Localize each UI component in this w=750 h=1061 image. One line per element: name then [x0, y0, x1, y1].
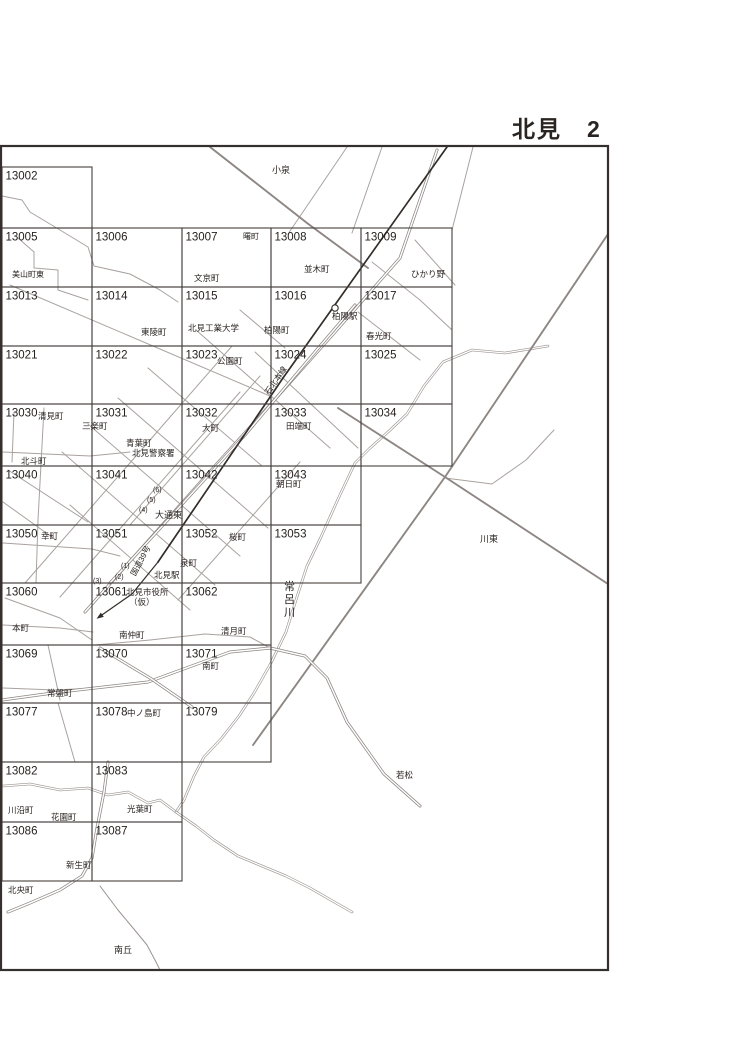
- place-label: 小泉: [272, 164, 290, 175]
- place-label: 川東: [480, 533, 498, 544]
- minor-road: [352, 147, 382, 233]
- grid-cell-number: 13052: [186, 529, 218, 541]
- grid-cell-number: 13078: [96, 707, 128, 719]
- place-label: 大通東: [155, 509, 182, 520]
- grid-cell-number: 13002: [6, 171, 38, 183]
- grid-cell-number: 13034: [365, 408, 398, 420]
- grid-cell-number: 13069: [6, 649, 38, 661]
- grid-cell-number: 13060: [6, 587, 38, 599]
- map-sheet-page: 北見 2 13002130051300613007130081300913013…: [0, 0, 750, 1061]
- major-road-fill: [85, 150, 437, 612]
- place-label: (2): [115, 574, 124, 581]
- place-label: 常呂川: [284, 580, 295, 619]
- grid-cell-number: 13079: [186, 707, 218, 719]
- grid-cell-number: 13071: [186, 649, 218, 661]
- place-label: 公園町: [217, 356, 243, 366]
- place-label: 春光町: [366, 331, 392, 341]
- place-label: 幸町: [41, 531, 59, 541]
- place-label: ひかり野: [411, 269, 446, 279]
- grid-cell-number: 13053: [275, 529, 307, 541]
- place-label: 北見工業大学: [188, 323, 240, 333]
- minor-road: [452, 147, 473, 230]
- grid-cell-number: 13087: [96, 826, 128, 838]
- place-label: 南丘: [114, 944, 132, 955]
- grid-cell-number: 13017: [365, 291, 397, 303]
- place-label: 北見市役所: [126, 587, 169, 597]
- place-label: (6): [153, 487, 162, 494]
- minor-road: [3, 543, 120, 556]
- grid-cell-number: 13023: [186, 350, 218, 362]
- grid-cell-number: 13007: [186, 232, 218, 244]
- grid-cell-number: 13083: [96, 766, 128, 778]
- river-fill: [176, 812, 352, 912]
- place-label: 東陵町: [141, 327, 167, 337]
- place-label: 清見町: [38, 411, 64, 421]
- place-label: 北見警察署: [132, 448, 175, 458]
- place-label: 美山町東: [12, 269, 44, 279]
- place-label: （仮）: [129, 597, 155, 607]
- minor-road: [10, 285, 270, 396]
- place-label: 北央町: [8, 885, 34, 895]
- place-label: 柏陽町: [264, 325, 290, 335]
- grid-cell-number: 13033: [275, 408, 307, 420]
- grid-cell-number: 13082: [6, 766, 38, 778]
- grid-cell-number: 13070: [96, 649, 128, 661]
- place-label: 南町: [202, 661, 220, 671]
- grid-cell-number: 13006: [96, 232, 128, 244]
- place-label: 柏陽駅: [332, 311, 358, 321]
- grid-cell-number: 13050: [6, 529, 38, 541]
- grid-cell-number: 13015: [186, 291, 218, 303]
- minor-road: [5, 598, 92, 640]
- place-label: 田端町: [286, 421, 312, 431]
- place-label: (4): [139, 507, 148, 514]
- grid-cell-number: 13024: [275, 350, 308, 362]
- grid-cell-number: 13032: [186, 408, 218, 420]
- grid-cell-number: 13062: [186, 587, 218, 599]
- place-label: 新生町: [66, 860, 92, 870]
- grid-cell-number: 13021: [6, 350, 38, 362]
- grid-cell-number: 13040: [6, 470, 38, 482]
- arrowhead-icon: [97, 613, 104, 619]
- place-label: 南仲町: [119, 630, 145, 640]
- grid-cell-number: 13030: [6, 408, 38, 420]
- grid-cell-number: 13016: [275, 291, 307, 303]
- grid-cell-number: 13005: [6, 232, 38, 244]
- grid-cell-number: 13061: [96, 587, 128, 599]
- place-label: 並木町: [304, 264, 330, 274]
- place-label: 泉町: [180, 558, 198, 568]
- place-label: 青葉町: [126, 438, 152, 448]
- place-label: 常盤町: [47, 688, 73, 698]
- place-label: 本町: [12, 623, 30, 633]
- grid-cell-number: 13077: [6, 707, 38, 719]
- grid-cell-number: 13009: [365, 232, 397, 244]
- place-label: 三楽町: [82, 421, 108, 431]
- grid-cell-number: 13008: [275, 232, 307, 244]
- place-label: (5): [147, 497, 156, 504]
- minor-road: [58, 703, 75, 762]
- place-label: 北斗町: [21, 456, 47, 466]
- minor-road: [25, 346, 232, 583]
- place-label: 曙町: [243, 232, 259, 241]
- minor-road: [12, 412, 14, 462]
- minor-road: [2, 196, 178, 302]
- grid-cell-number: 13051: [96, 529, 128, 541]
- minor-road: [288, 147, 347, 234]
- place-label: 川沿町: [8, 805, 34, 815]
- highway-road: [253, 234, 608, 745]
- grid-cell-number: 13042: [186, 470, 218, 482]
- place-label: 文京町: [194, 273, 220, 283]
- place-label: (3): [93, 578, 102, 585]
- minor-road: [445, 430, 554, 484]
- minor-road: [36, 408, 44, 583]
- grid-cell-number: 13031: [96, 408, 128, 420]
- grid-cell-number: 13025: [365, 350, 397, 362]
- major-road: [85, 150, 437, 612]
- stream-line: [100, 886, 160, 970]
- place-label: 大町: [202, 423, 220, 433]
- grid-cell-number: 13014: [96, 291, 129, 303]
- place-label: 若松: [396, 770, 414, 780]
- place-label: 北見駅: [154, 570, 180, 580]
- place-label: 花園町: [51, 812, 77, 822]
- grid-cell-number: 13022: [96, 350, 128, 362]
- place-label: 桜町: [229, 532, 247, 542]
- place-label: 光葉町: [127, 804, 153, 814]
- place-label: 清月町: [221, 626, 247, 636]
- grid-cell-number: 13041: [96, 470, 128, 482]
- place-label: 朝日町: [276, 479, 302, 489]
- place-label: 中ノ島町: [127, 708, 162, 718]
- grid-cell-number: 13086: [6, 826, 38, 838]
- grid-cell-number: 13013: [6, 291, 38, 303]
- place-label: (1): [121, 563, 130, 570]
- map-svg: 1300213005130061300713008130091301313014…: [0, 0, 750, 1061]
